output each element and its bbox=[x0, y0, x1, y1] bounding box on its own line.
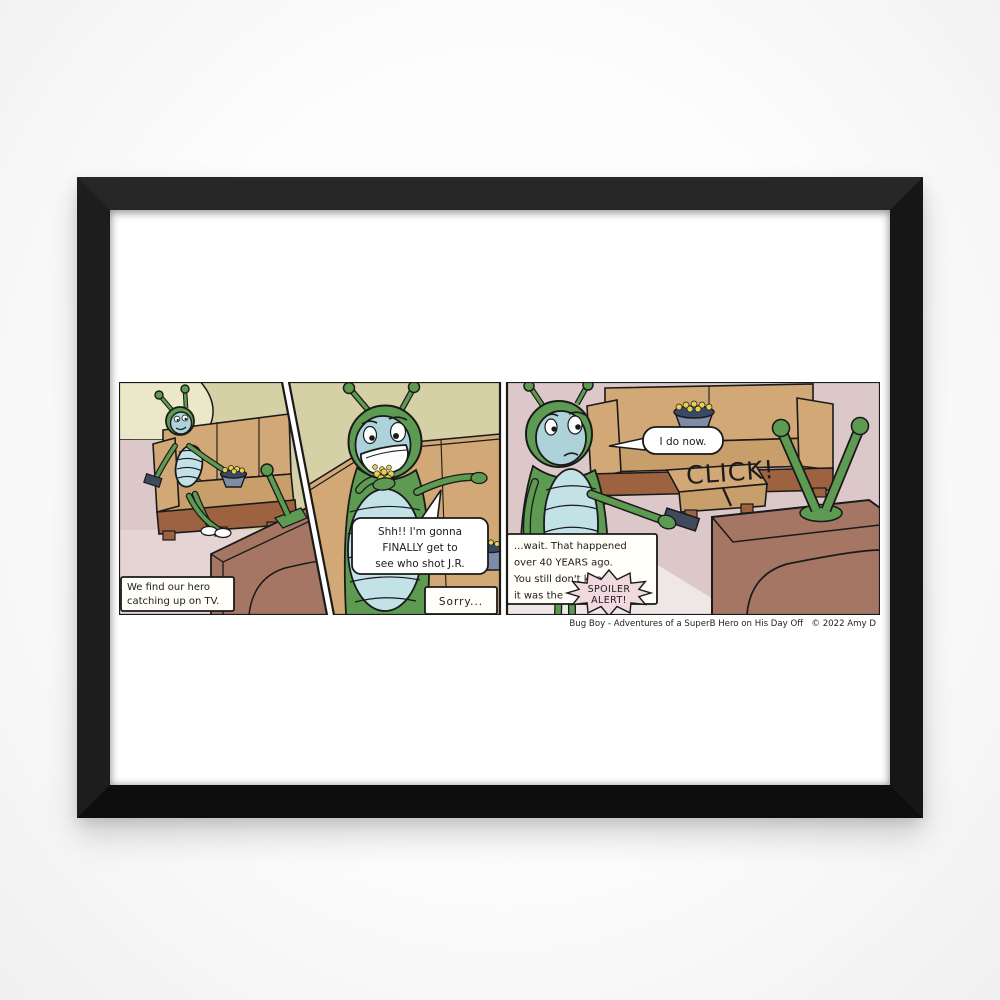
television-p3 bbox=[712, 500, 880, 615]
panel1-narration-box: We find our hero catching up on TV. bbox=[121, 577, 234, 611]
panel1-caption-line2: catching up on TV. bbox=[127, 596, 219, 607]
panel2-speech-line1: Shh!! I'm gonna bbox=[378, 526, 462, 538]
panel2-speech-line2: FINALLY get to bbox=[382, 542, 457, 554]
panel2-caption: Sorry... bbox=[439, 596, 483, 608]
bug-face bbox=[171, 412, 192, 434]
burst-line1: SPOILER bbox=[588, 584, 631, 595]
popcorn-bowl-p1 bbox=[221, 465, 247, 487]
panel1-caption-line1: We find our hero bbox=[127, 582, 210, 593]
slipper bbox=[215, 529, 231, 538]
panel3-speech: I do now. bbox=[660, 436, 707, 448]
product-photo-background: We find our hero catching up on TV. bbox=[0, 0, 1000, 1000]
comic-panel-3: I do now. CLICK! bbox=[507, 382, 880, 615]
poster-matte: We find our hero catching up on TV. bbox=[110, 210, 890, 785]
comic-attribution: Bug Boy - Adventures of a SuperB Hero on… bbox=[569, 619, 876, 629]
click-sfx-text: CLICK! bbox=[685, 455, 775, 490]
comic-strip: We find our hero catching up on TV. bbox=[119, 382, 880, 615]
panel2-narration-box: Sorry... bbox=[425, 587, 497, 614]
panel2-speech-line3: see who shot J.R. bbox=[375, 558, 464, 570]
panel3-caption-line4: it was the bbox=[514, 591, 563, 602]
panel3-caption-line1: ...wait. That happened bbox=[514, 541, 627, 552]
panel3-caption-line2: over 40 YEARS ago. bbox=[514, 558, 613, 569]
poster-frame: We find our hero catching up on TV. bbox=[77, 177, 923, 818]
burst-line2: ALERT! bbox=[591, 595, 627, 606]
